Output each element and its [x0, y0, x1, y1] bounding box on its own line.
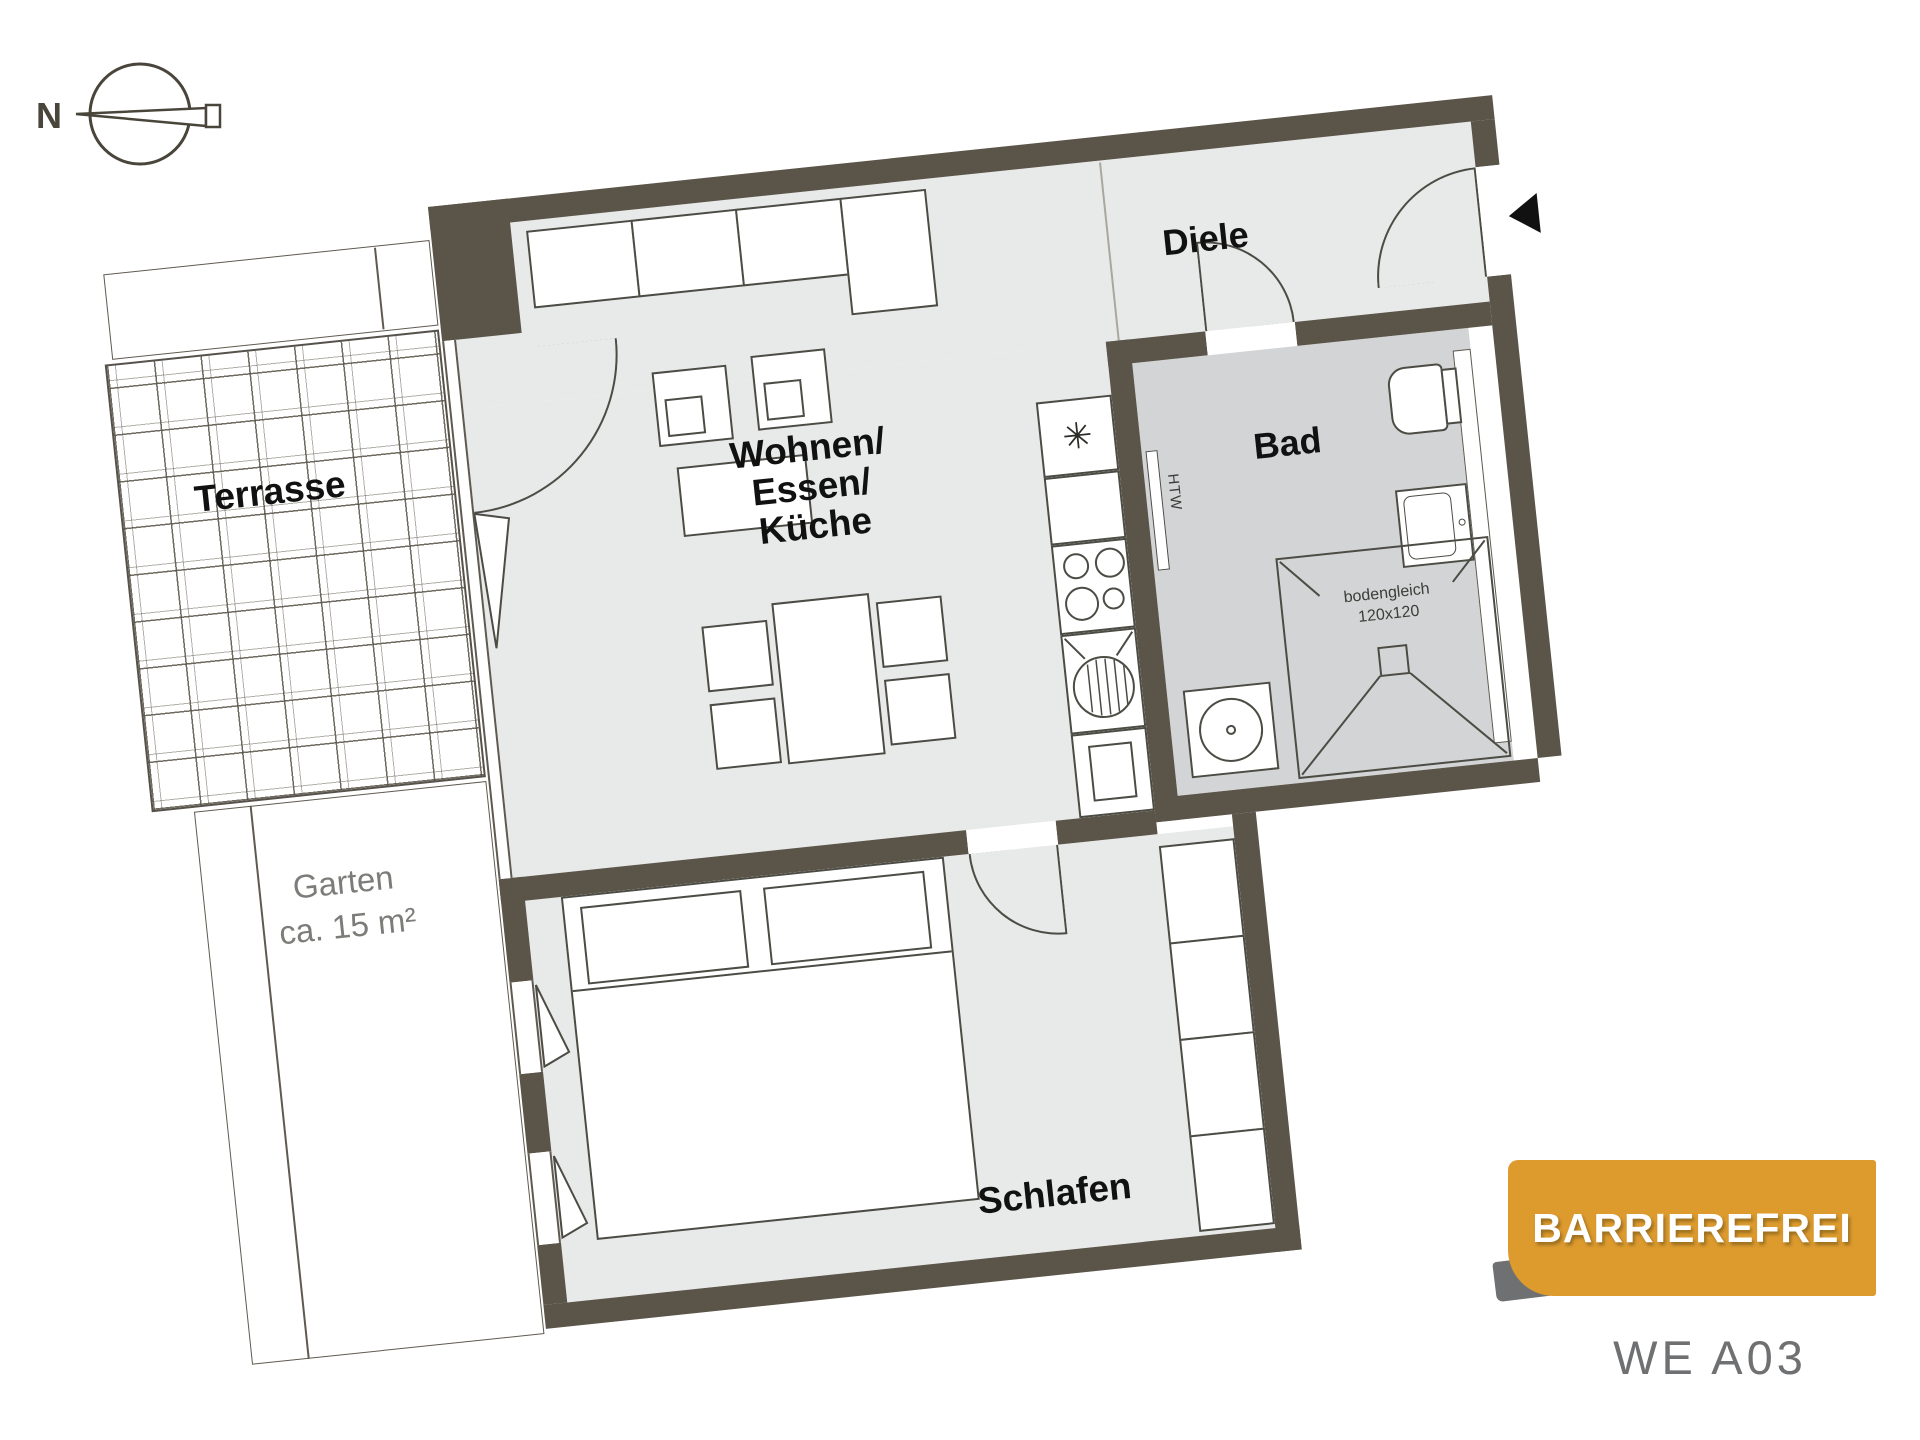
kitchen-base-basin [1088, 741, 1138, 801]
fridge: ✳ [1036, 395, 1120, 479]
sofa-seat-3 [735, 198, 850, 287]
kitchen-sink-unit [1060, 627, 1146, 734]
armchair-1-seat [664, 395, 706, 437]
shower: bodengleich 120x120 [1275, 536, 1511, 779]
sofa-seat-2 [630, 209, 745, 298]
wall-corner-block [428, 199, 522, 342]
toilet [1386, 363, 1449, 436]
pillow-2 [763, 871, 932, 966]
sofa-chaise [839, 189, 938, 315]
fridge-star-icon: ✳ [1060, 414, 1094, 459]
sofa-seat-1 [526, 220, 641, 309]
burner-4 [1102, 586, 1126, 610]
burner-3 [1063, 585, 1100, 622]
terrace-area [105, 330, 486, 813]
stove [1051, 538, 1136, 635]
wardrobe-3 [1179, 1031, 1265, 1137]
armchair-2-seat [763, 379, 805, 421]
armchair-1 [652, 365, 734, 447]
living-label: Wohnen/ Essen/ Küche [691, 417, 932, 557]
burner-2 [1093, 546, 1126, 579]
pillow-1 [580, 890, 749, 985]
burner-1 [1062, 552, 1091, 581]
kitchen-sink-icon [1062, 630, 1144, 733]
north-compass-icon: N [20, 48, 260, 178]
armchair-2 [750, 348, 832, 430]
wardrobe-1 [1159, 838, 1245, 944]
dining-table [771, 593, 885, 764]
barrier-free-badge: BARRIEREFREI [1508, 1160, 1876, 1296]
kitchen-counter [1044, 470, 1127, 546]
dining-chair-3 [876, 595, 949, 668]
wall-right-above-entrance [1471, 119, 1500, 167]
dining-chair-1 [701, 620, 774, 693]
dining-chair-4 [884, 673, 957, 746]
bath-sink-faucet [1458, 518, 1466, 526]
barrier-free-badge-label: BARRIEREFREI [1532, 1205, 1852, 1252]
floor-plan: Terrasse Garten ca. 15 m² [80, 0, 1676, 1421]
wardrobe-4 [1189, 1128, 1275, 1232]
washing-machine [1183, 682, 1280, 779]
entrance-arrow-icon [1505, 191, 1543, 238]
compass-n-text: N [36, 95, 62, 136]
dining-chair-2 [710, 697, 783, 770]
kitchen-base-unit [1071, 727, 1155, 818]
bed [561, 857, 980, 1240]
wardrobe-2 [1169, 935, 1255, 1041]
unit-id-label: WE A03 [1540, 1330, 1880, 1385]
